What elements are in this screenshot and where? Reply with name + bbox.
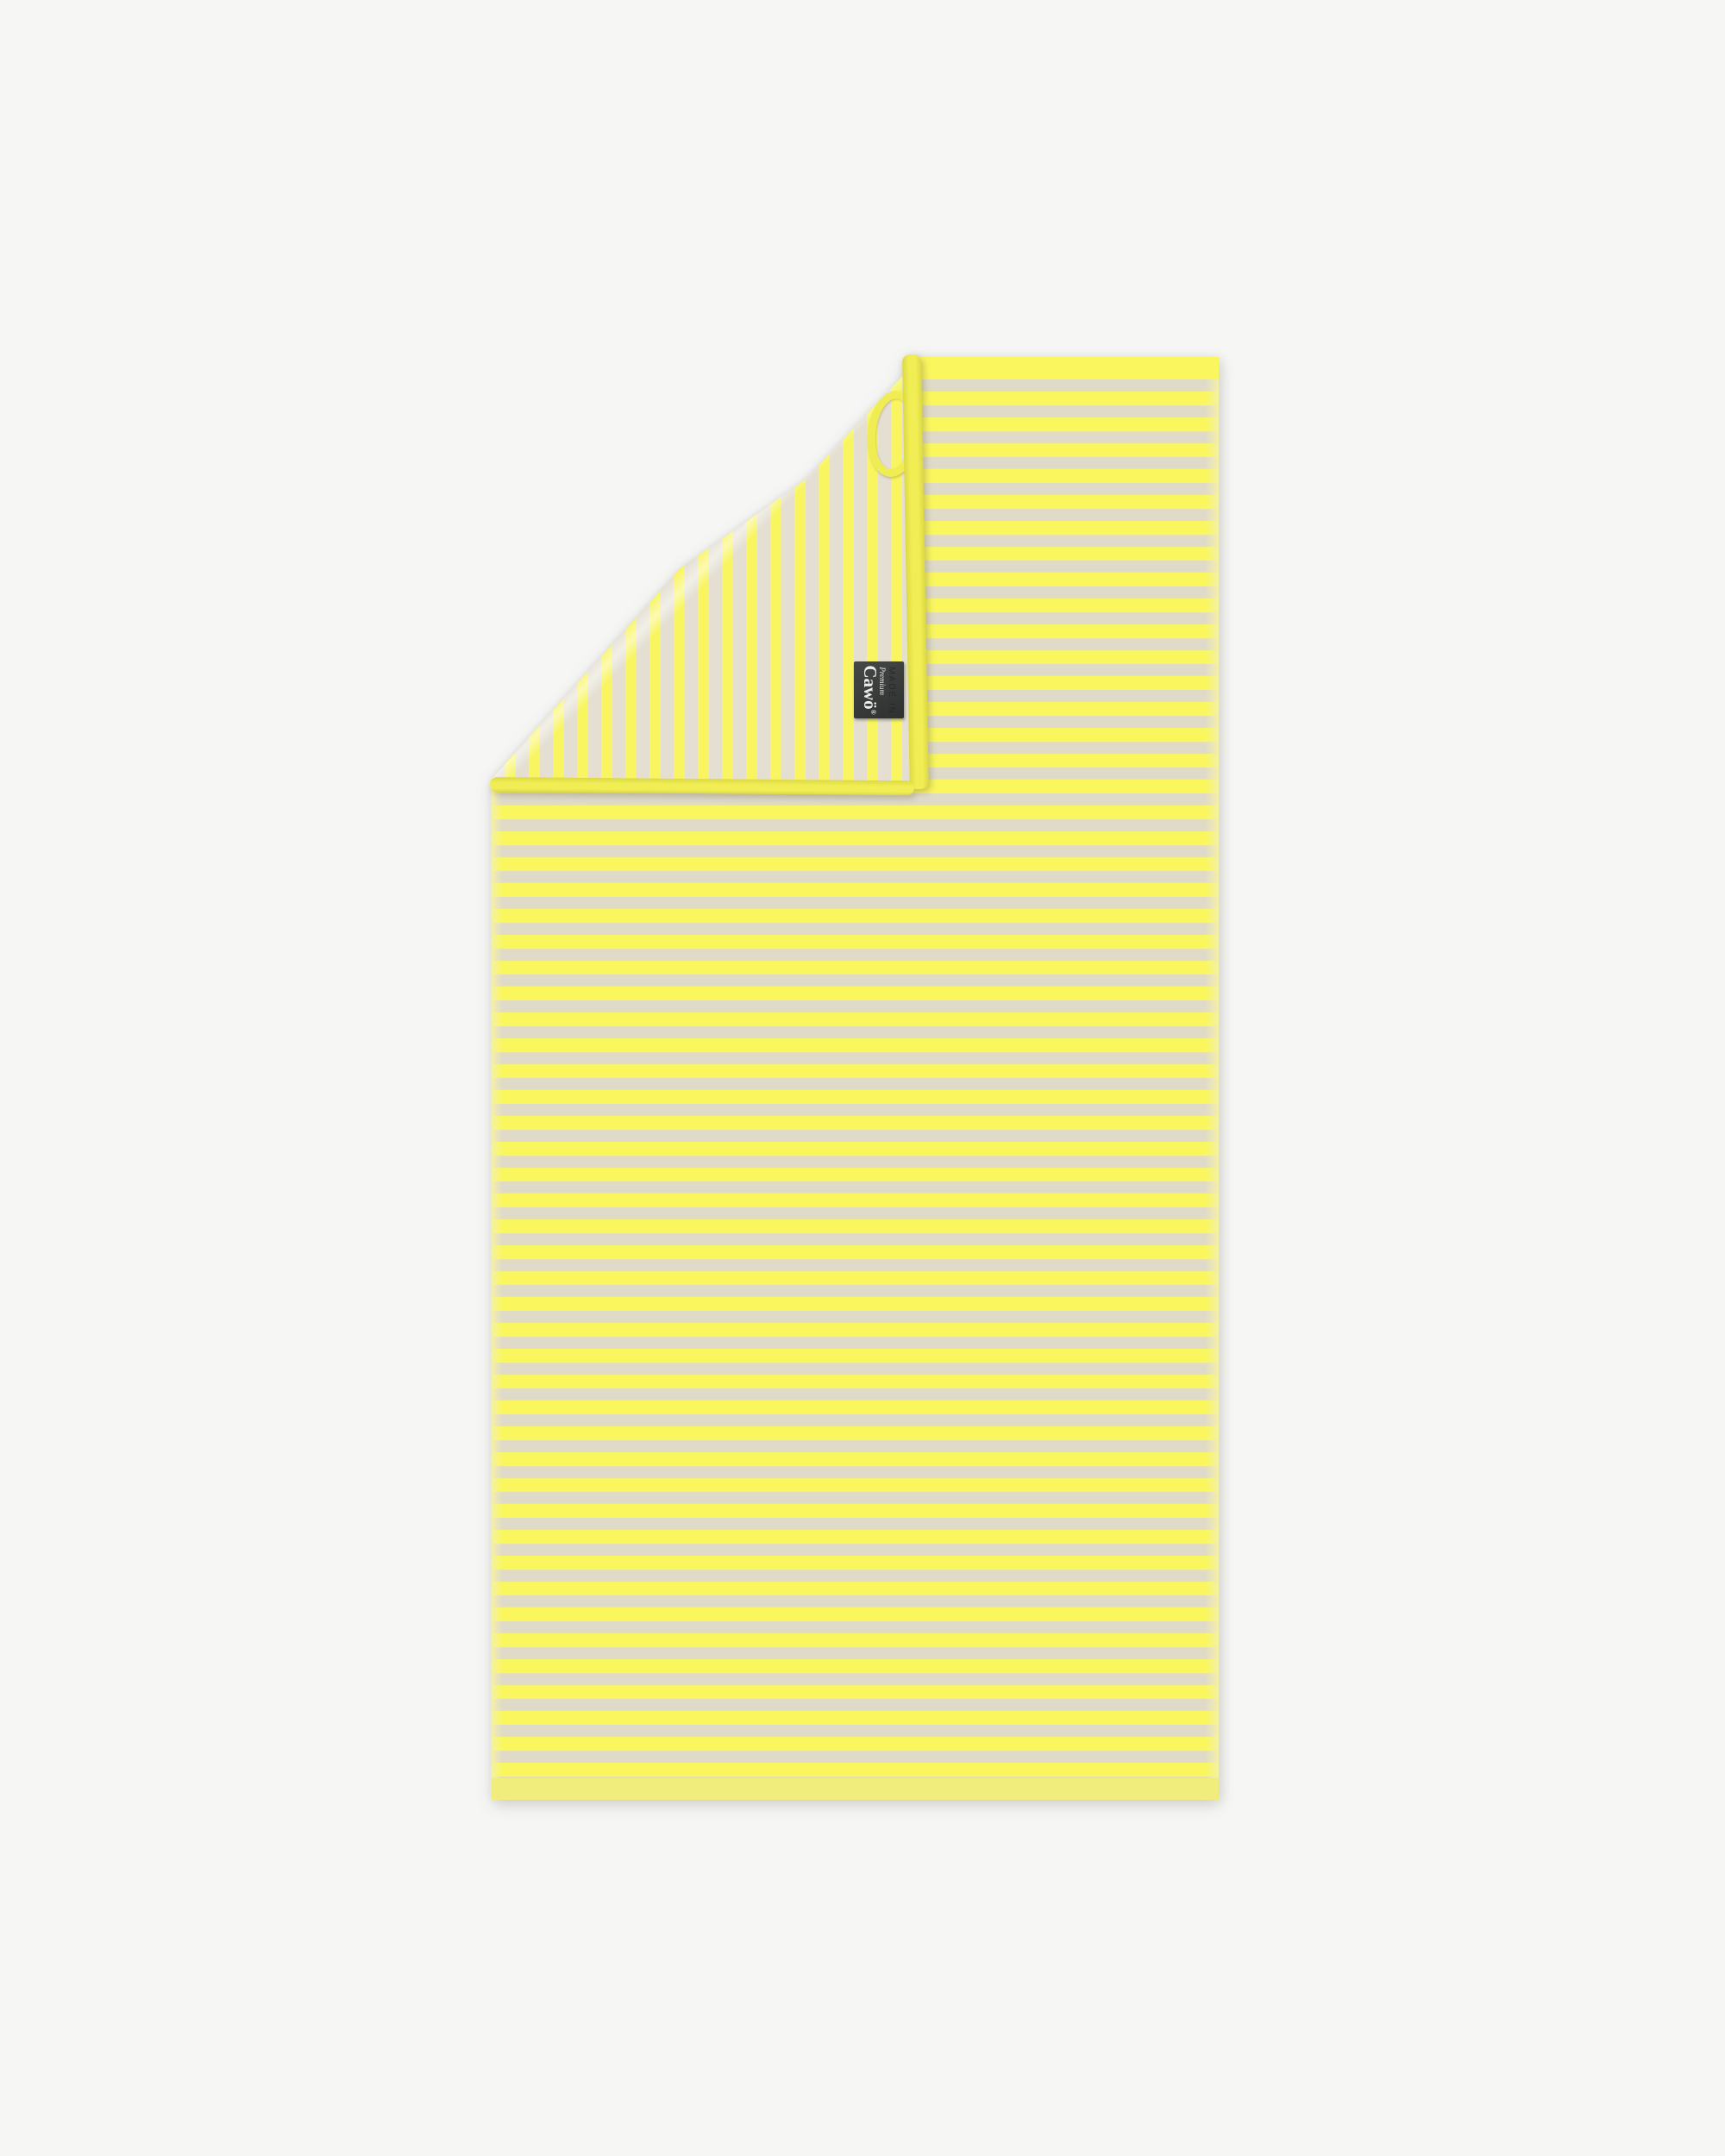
label-brand-word: Cawö (861, 665, 881, 709)
label-brand-text: Cawö® (862, 665, 880, 714)
edge-binding-horizontal (490, 777, 914, 795)
reverse-stripes (492, 357, 1219, 1800)
label-ghost-text: MADE IN (888, 667, 897, 715)
brand-label: MADE IN Premium Cawö® (854, 661, 904, 718)
towel-folded-corner: MADE IN Premium Cawö® (492, 357, 1219, 1800)
towel: MADE IN Premium Cawö® (492, 357, 1219, 1800)
product-photo: MADE IN Premium Cawö® (0, 0, 1725, 2156)
towel-reverse-side (492, 357, 1219, 1800)
label-brand-line: Premium Cawö® (862, 665, 887, 714)
brand-label-rotated-text: MADE IN Premium Cawö® (855, 663, 903, 717)
registered-trademark-icon: ® (870, 710, 878, 715)
